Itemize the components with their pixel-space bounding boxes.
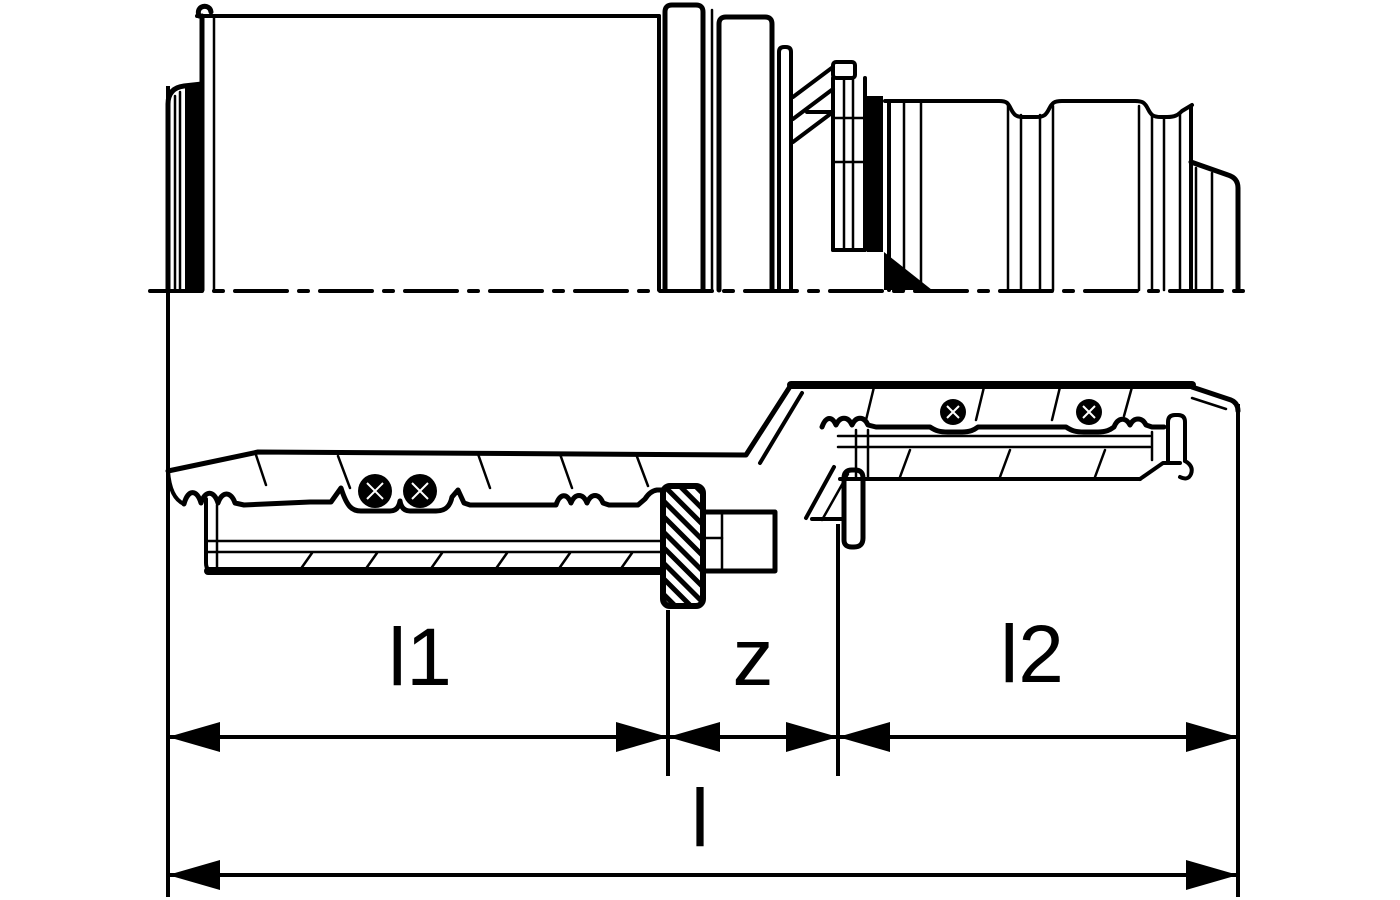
- dim-label-z: z: [733, 612, 774, 703]
- press-indicator-clip: [833, 62, 932, 290]
- small-press-sleeve: [885, 101, 1238, 290]
- dim-arrow: [1186, 860, 1238, 890]
- technical-drawing-canvas: l1 z l2 l: [0, 0, 1400, 900]
- dim-arrow: [168, 722, 220, 752]
- stepped-rings: [665, 5, 791, 290]
- dim-arrow: [786, 722, 838, 752]
- fitting-body-section-left: [168, 385, 802, 572]
- dim-arrow: [838, 722, 890, 752]
- dim-arrow: [668, 722, 720, 752]
- clip-shadow-wedge: [884, 252, 932, 290]
- dim-label-l2: l2: [1000, 609, 1064, 700]
- dim-arrow: [1186, 722, 1238, 752]
- clip-shadow-band: [867, 96, 883, 252]
- o-ring-right-pair: [940, 399, 1102, 425]
- dim-arrow: [616, 722, 668, 752]
- dim-label-l: l: [691, 773, 709, 864]
- large-press-sleeve: [197, 6, 659, 290]
- dim-arrow: [168, 860, 220, 890]
- dim-label-l1: l1: [388, 612, 452, 703]
- cone-transition-lines: [793, 67, 833, 142]
- press-fitting-section-drawing: l1 z l2 l: [0, 0, 1400, 900]
- support-step-block: [703, 512, 775, 571]
- left-collar-ring: [168, 84, 202, 290]
- fitting-body-section-right: [791, 385, 1238, 479]
- pipe-stop-hatched: [663, 486, 703, 606]
